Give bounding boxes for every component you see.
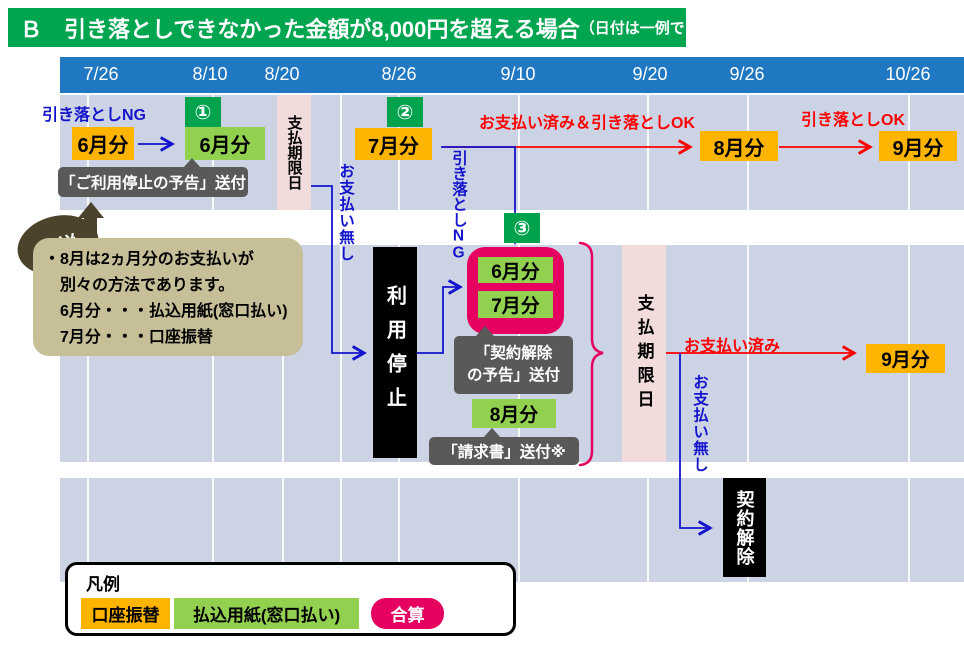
payment-deadline-label: 支払期限日: [284, 115, 305, 190]
tooltip-pointer: [476, 326, 494, 336]
date-label: 10/26: [885, 64, 930, 85]
commentary-line: 6月分・・・払込用紙(窓口払い): [44, 299, 292, 325]
service-suspension-label: 利用停止: [381, 285, 410, 421]
debit-ok-label: 引き落としOK: [801, 106, 905, 130]
service-suspension-box: 利用停止: [373, 247, 417, 458]
legend-item-combined: 合算: [371, 598, 444, 629]
up-arrow-icon: [78, 202, 104, 218]
date-label: 8/10: [192, 64, 227, 85]
combined-months-box: 6月分 7月分: [467, 247, 564, 334]
payment-deadline-column-2: 支払期限日: [622, 245, 666, 462]
invoice-tooltip: 「請求書」送付※: [429, 437, 579, 465]
month-box-jul-slip-combined: 7月分: [478, 291, 553, 318]
up-arrow-stem: [84, 217, 97, 238]
debit-ng-vertical-label: 引き落としNG: [447, 150, 469, 262]
page-title: Ｂ 引き落としできなかった金額が8,000円を超える場合（日付は一例です。）: [8, 8, 686, 47]
contract-termination-box: 契約解除: [723, 478, 766, 577]
legend-item-account-debit: 口座振替: [81, 598, 170, 629]
termination-notice-line2: の予告」送付: [467, 365, 560, 387]
date-label: 7/26: [83, 64, 118, 85]
debit-ng-label: 引き落としNG: [42, 101, 146, 125]
page-title-suffix: （日付は一例です。）: [580, 17, 721, 38]
payment-deadline-label: 支払期限日: [632, 294, 657, 414]
commentary-line: 別々の方法であります。: [44, 273, 292, 299]
month-box-aug-slip: 8月分: [472, 399, 556, 428]
contract-termination-label: 契約解除: [732, 490, 758, 566]
date-label: 8/26: [381, 64, 416, 85]
page-title-text: Ｂ 引き落としできなかった金額が8,000円を超える場合: [20, 12, 580, 44]
commentary-box: ・8月は2ヵ月分のお支払いが 別々の方法であります。 6月分・・・払込用紙(窓口…: [33, 238, 303, 356]
commentary-line: ・8月は2ヵ月分のお支払いが: [44, 247, 292, 273]
date-label: 9/20: [632, 64, 667, 85]
timeline-header: 7/26 8/10 8/20 8/26 9/10 9/20 9/26 10/26: [60, 57, 964, 93]
paid-label: お支払い済み: [684, 332, 780, 356]
legend-item-payment-slip: 払込用紙(窓口払い): [174, 598, 359, 629]
month-box-jul-debit: 7月分: [355, 128, 432, 160]
date-label: 9/10: [500, 64, 535, 85]
date-label: 9/26: [729, 64, 764, 85]
step-badge-1: ①: [185, 97, 221, 127]
month-box-aug-debit: 8月分: [700, 131, 778, 161]
step-badge-3: ③: [504, 213, 540, 243]
paid-and-ok-label: お支払い済み＆引き落としOK: [479, 109, 695, 133]
month-box-jun-slip: 6月分: [185, 127, 265, 160]
month-box-jun-debit: 6月分: [72, 127, 134, 160]
termination-notice-tooltip: 「契約解除 の予告」送付: [454, 336, 573, 394]
payment-deadline-column-1: 支払期限日: [277, 95, 311, 210]
month-box-sep-debit-row2: 9月分: [866, 344, 945, 373]
suspension-notice-tooltip: 「ご利用停止の予告」送付: [58, 167, 248, 197]
legend: 凡例 口座振替 払込用紙(窓口払い) 合算: [65, 562, 516, 636]
step-badge-2: ②: [387, 97, 423, 127]
date-label: 8/20: [264, 64, 299, 85]
no-payment-vertical-label-2: お支払い無し: [688, 374, 710, 473]
legend-title: 凡例: [86, 570, 120, 595]
commentary-line: 7月分・・・口座振替: [44, 325, 292, 351]
termination-notice-line1: 「契約解除: [475, 343, 553, 365]
no-payment-vertical-label-1: お支払い無し: [334, 163, 356, 262]
month-box-jun-slip-combined: 6月分: [478, 257, 553, 283]
slide: Ｂ 引き落としできなかった金額が8,000円を超える場合（日付は一例です。） 7…: [0, 0, 964, 662]
month-box-sep-debit-row1: 9月分: [879, 131, 957, 161]
